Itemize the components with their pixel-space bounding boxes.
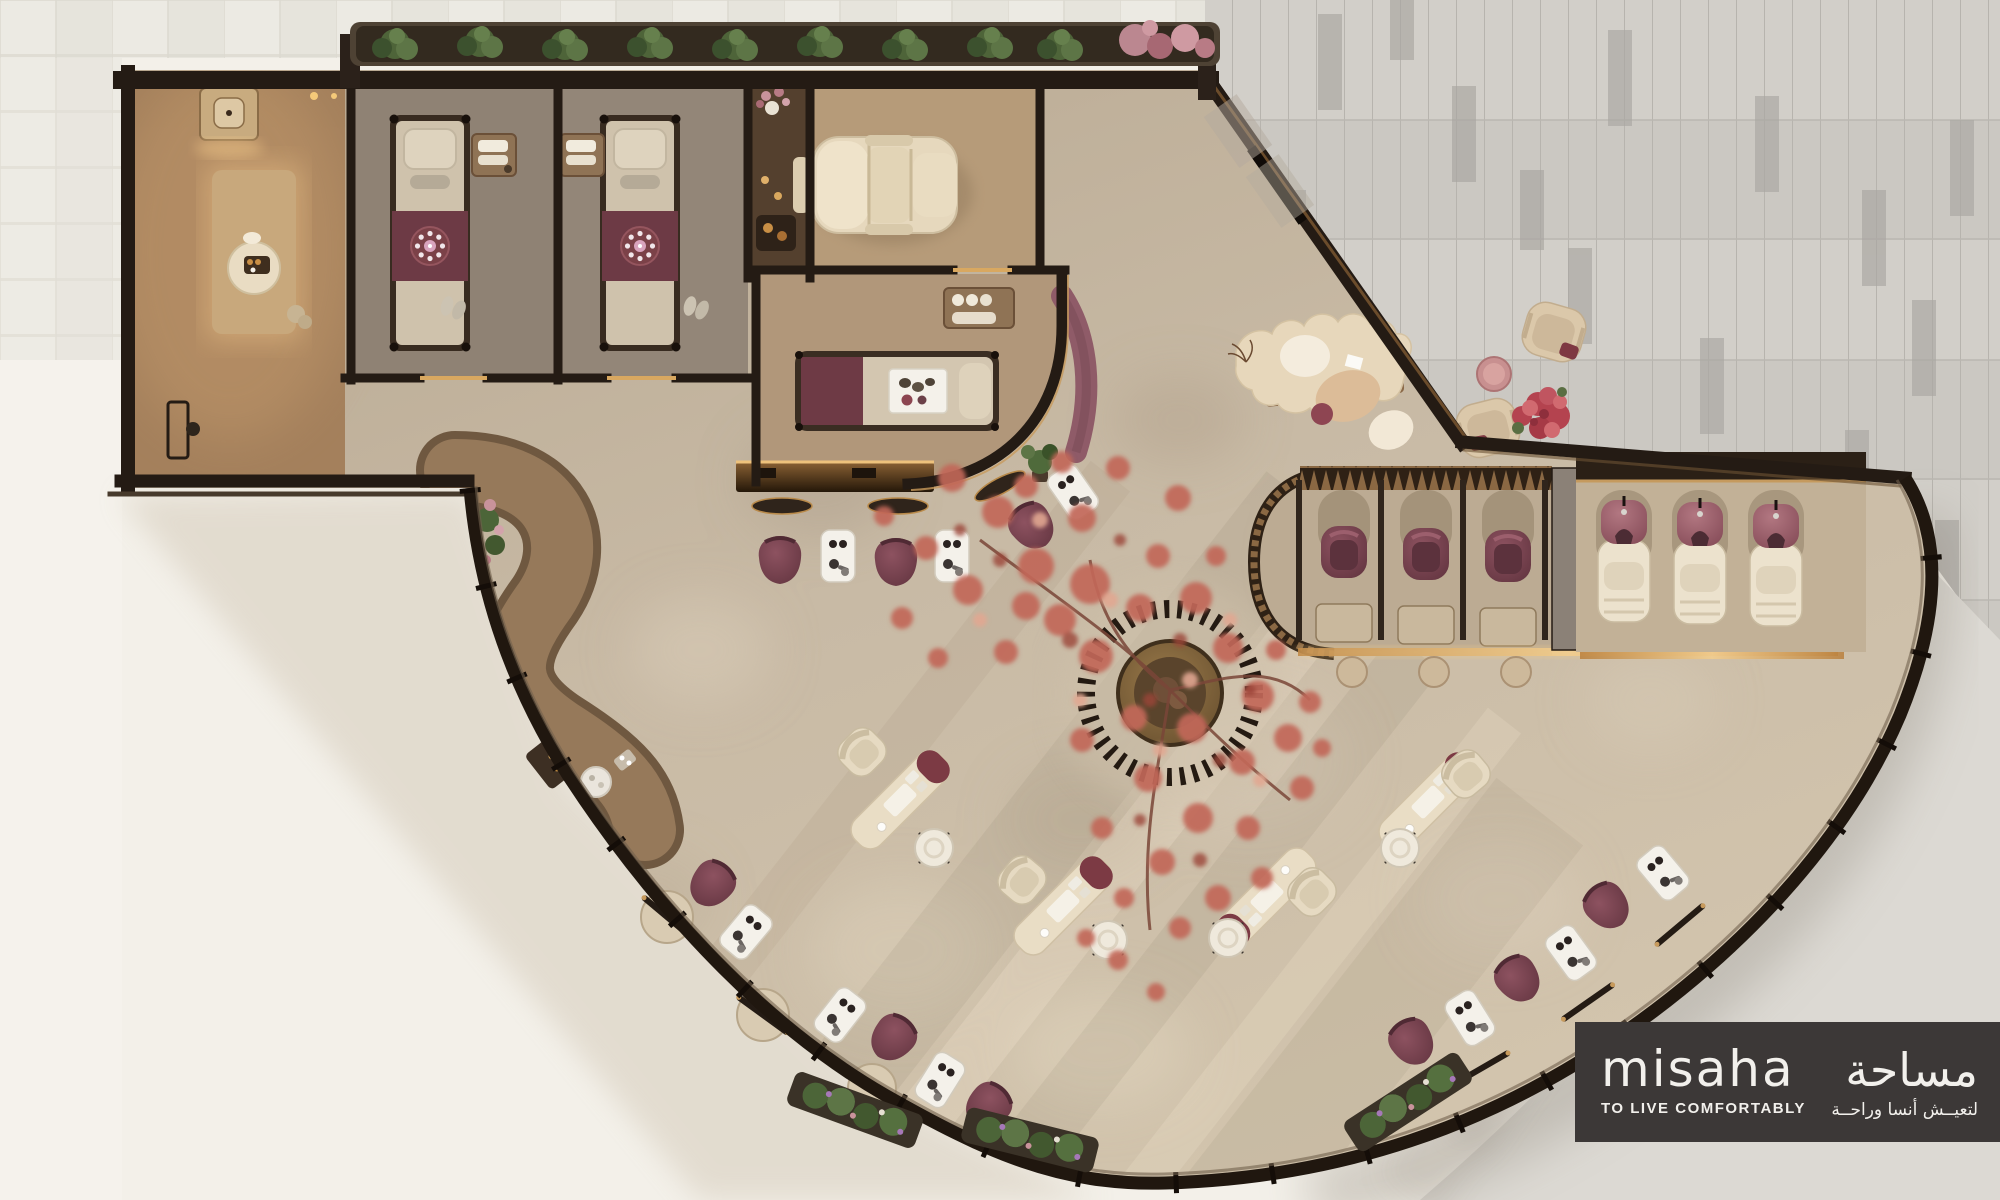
pleated-screen — [1300, 466, 1552, 490]
backwash-unit — [1750, 500, 1802, 626]
foot-rest-desk — [1316, 604, 1372, 642]
massage-bed — [600, 115, 681, 352]
logo-brand-en: misaha — [1601, 1044, 1795, 1094]
hair-wash-area — [1576, 452, 1866, 659]
foot-rest-desk — [1480, 608, 1536, 646]
backwash-unit — [1674, 498, 1726, 624]
pedicure-stool — [1337, 657, 1367, 687]
pedicure-stool — [1501, 657, 1531, 687]
logo-brand-ar: مساحة — [1845, 1047, 1978, 1093]
facade-planter — [345, 20, 1220, 66]
wall-light — [310, 92, 318, 100]
foot-rest-desk — [1398, 606, 1454, 644]
salon-floor-plan-page: misaha مساحة TO LIVE COMFORTABLY لتعيــش… — [0, 0, 2000, 1200]
salon-floor-plan-render — [0, 0, 2000, 1200]
pebble-stool — [1280, 335, 1330, 377]
pedicure-chair — [1321, 526, 1367, 578]
pedicure-chair — [1485, 530, 1531, 582]
logo-tagline-en: TO LIVE COMFORTABLY — [1601, 1100, 1806, 1120]
treatment-table — [795, 351, 999, 431]
divider-panel — [1552, 468, 1578, 650]
pedicure-chair — [1403, 528, 1449, 580]
wall-light — [331, 93, 337, 99]
stylist-trolley — [935, 530, 969, 582]
backwash-unit — [1598, 496, 1650, 622]
stylist-trolley — [821, 530, 855, 582]
tech-stool — [1209, 919, 1247, 957]
misaha-logo-box: misaha مساحة TO LIVE COMFORTABLY لتعيــش… — [1575, 1022, 2000, 1142]
pedicure-stool — [1419, 657, 1449, 687]
logo-tagline-ar: لتعيــش أنسا وراحــة — [1831, 1100, 1978, 1120]
floor-glow-strip — [1580, 652, 1844, 659]
tech-stool — [1381, 829, 1419, 867]
tech-stool — [915, 829, 953, 867]
